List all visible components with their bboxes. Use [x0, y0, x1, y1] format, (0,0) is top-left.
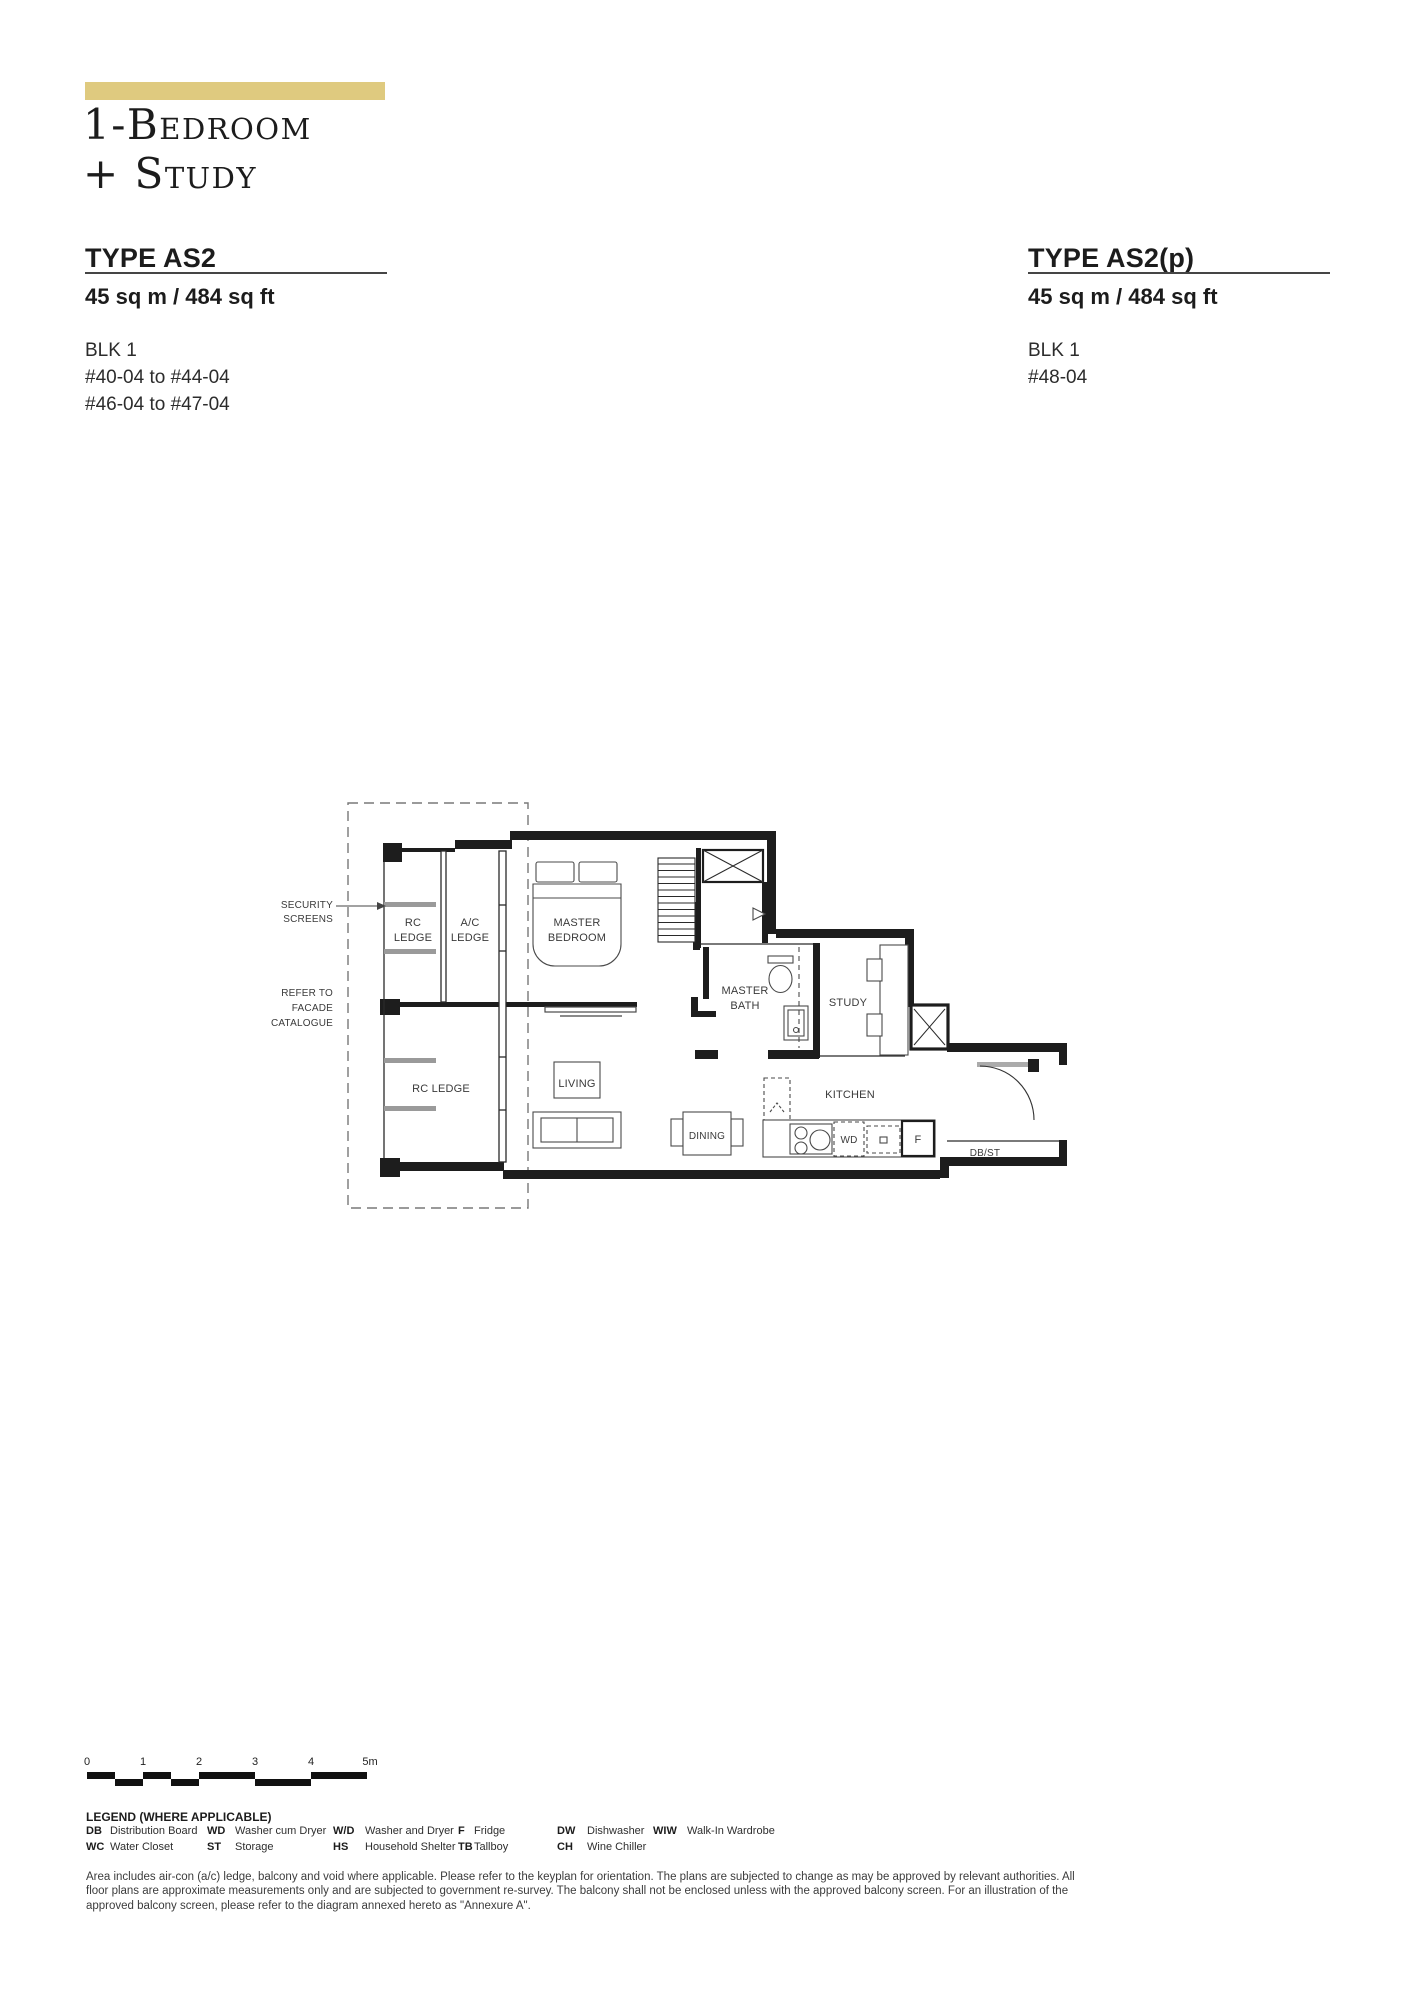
- security-leader: [336, 902, 386, 910]
- page-title: 1-Bedroom + Study: [83, 100, 312, 198]
- label-master-bath: MASTER: [721, 985, 768, 997]
- legend-entry: WDWasher cum Dryer: [207, 1825, 326, 1837]
- legend-entry: DWDishwasher: [557, 1825, 644, 1837]
- label-master-bedroom: MASTER: [553, 917, 600, 929]
- scale-tick: 0: [84, 1756, 90, 1768]
- tv-console: [545, 1007, 636, 1016]
- entrance-door: [977, 1062, 1034, 1120]
- stack-range: #48-04: [1028, 364, 1087, 391]
- label-rc-ledge-upper: RC: [405, 917, 421, 929]
- wardrobe: [658, 858, 695, 942]
- scale-tick: 5m: [362, 1756, 377, 1768]
- legend-entry: W/DWasher and Dryer: [333, 1825, 454, 1837]
- unit-block-left: BLK 1 #40-04 to #44-04 #46-04 to #47-04: [85, 337, 230, 418]
- label-ac-ledge: LEDGE: [451, 932, 489, 944]
- legend-entry: STStorage: [207, 1841, 274, 1853]
- scale-tick: 3: [252, 1756, 258, 1768]
- sofa: [533, 1112, 621, 1148]
- rule-left: [85, 272, 387, 274]
- unit-area-left: 45 sq m / 484 sq ft: [85, 284, 275, 310]
- floorplan-page: 1-Bedroom + Study TYPE AS2 45 sq m / 484…: [0, 0, 1414, 2000]
- label-refer-facade: CATALOGUE: [271, 1018, 333, 1029]
- label-study: STUDY: [829, 997, 868, 1009]
- study-desk: [867, 945, 908, 1055]
- legend-entry: FFridge: [458, 1825, 505, 1837]
- block-label: BLK 1: [85, 337, 230, 364]
- rule-right: [1028, 272, 1330, 274]
- legend-entry: HSHousehold Shelter: [333, 1841, 456, 1853]
- stack-range: #40-04 to #44-04: [85, 364, 230, 391]
- page-title-line2: + Study: [83, 149, 312, 198]
- block-label: BLK 1: [1028, 337, 1087, 364]
- label-refer-facade: FACADE: [292, 1003, 333, 1014]
- legend-entry: CHWine Chiller: [557, 1841, 646, 1853]
- accent-bar: [85, 82, 385, 100]
- label-kitchen: KITCHEN: [825, 1089, 875, 1101]
- label-fridge: F: [915, 1134, 922, 1146]
- legend-entry: WCWater Closet: [86, 1841, 173, 1853]
- label-dining: DINING: [689, 1131, 725, 1142]
- floorplan-drawing: SECURITY SCREENS REFER TO FACADE CATALOG…: [260, 790, 1080, 1220]
- legend-entry: WIWWalk-In Wardrobe: [653, 1825, 775, 1837]
- unit-type-left: TYPE AS2: [85, 243, 216, 274]
- stack-range: #46-04 to #47-04: [85, 391, 230, 418]
- scale-tick: 2: [196, 1756, 202, 1768]
- label-master-bath: BATH: [730, 1000, 759, 1012]
- label-security-screens: SECURITY: [281, 900, 333, 911]
- legend-heading: LEGEND (WHERE APPLICABLE): [86, 1810, 272, 1824]
- disclaimer-text: Area includes air-con (a/c) ledge, balco…: [86, 1870, 1091, 1914]
- scale-tick: 4: [308, 1756, 314, 1768]
- label-living: LIVING: [558, 1078, 595, 1090]
- label-ac-ledge: A/C: [461, 917, 480, 929]
- label-washer-dryer: WD: [840, 1135, 857, 1146]
- legend-entry: DBDistribution Board: [86, 1825, 197, 1837]
- bed: [533, 862, 621, 966]
- unit-type-right: TYPE AS2(p): [1028, 243, 1194, 274]
- page-title-line1: 1-Bedroom: [83, 100, 312, 149]
- label-rc-ledge-lower: RC LEDGE: [412, 1083, 470, 1095]
- scale-tick: 1: [140, 1756, 146, 1768]
- unit-block-right: BLK 1 #48-04: [1028, 337, 1087, 391]
- label-refer-facade: REFER TO: [281, 988, 333, 999]
- label-security-screens: SCREENS: [283, 914, 333, 925]
- shaft-x: [911, 1005, 948, 1049]
- label-master-bedroom: BEDROOM: [548, 932, 606, 944]
- label-db-st: DB/ST: [970, 1148, 1000, 1159]
- closet-x: [703, 850, 763, 882]
- legend-entry: TBTallboy: [458, 1841, 508, 1853]
- label-rc-ledge-upper: LEDGE: [394, 932, 432, 944]
- unit-area-right: 45 sq m / 484 sq ft: [1028, 284, 1218, 310]
